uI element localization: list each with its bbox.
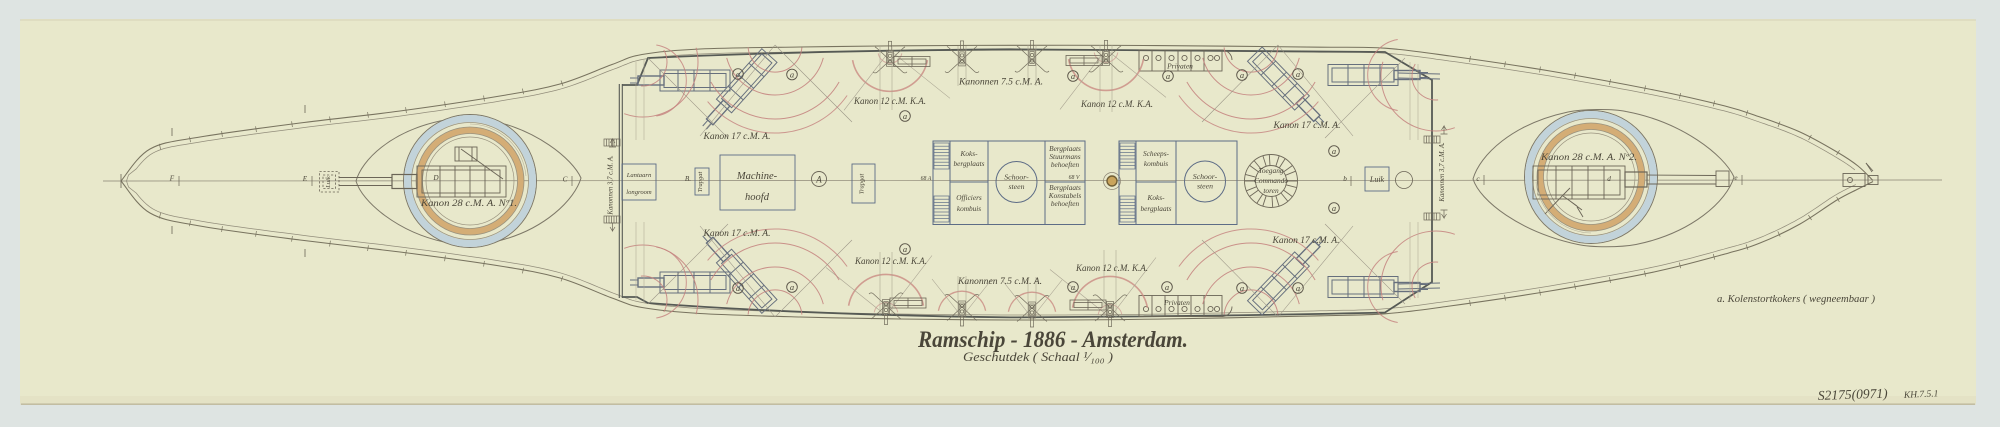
svg-text:steen: steen [1197,182,1213,191]
svg-text:Schoor-: Schoor- [1004,173,1029,182]
svg-text:kombuis: kombuis [957,204,981,213]
svg-text:Privaten: Privaten [1163,298,1190,307]
svg-text:hoofd: hoofd [745,192,770,203]
svg-text:Trapgat: Trapgat [697,172,704,193]
svg-text:Kanonnen 3,7 c.M. A.: Kanonnen 3,7 c.M. A. [608,155,615,216]
svg-text:bergplaats: bergplaats [954,159,985,168]
svg-text:bergplaats: bergplaats [1141,204,1172,213]
svg-text:S2175(0971): S2175(0971) [1818,386,1889,403]
svg-text:Lantaarn: Lantaarn [626,172,652,179]
svg-text:Kanon 12 c.M. K.A.: Kanon 12 c.M. K.A. [1075,264,1148,274]
svg-text:Machine-: Machine- [736,171,778,182]
svg-text:steen: steen [1008,182,1024,191]
svg-text:Kanonnen 7.5 c.M. A.: Kanonnen 7.5 c.M. A. [957,277,1042,287]
svg-text:C: C [563,176,568,184]
svg-text:KH.7.5.1: KH.7.5.1 [1903,389,1939,401]
svg-text:d: d [1607,175,1611,183]
svg-text:b: b [1343,175,1347,183]
svg-text:F: F [169,175,175,183]
svg-text:Commando: Commando [1254,176,1288,185]
svg-text:kombuis: kombuis [1144,159,1168,168]
svg-text:Kanon 17 c.M. A.: Kanon 17 c.M. A. [1272,121,1340,131]
svg-text:Koks-: Koks- [959,149,978,158]
svg-text:behoeften: behoeften [1051,160,1080,169]
svg-text:D: D [432,174,439,182]
svg-text:68 A: 68 A [921,176,932,182]
svg-text:Privaten: Privaten [1166,62,1193,71]
svg-text:behoeften: behoeften [1051,199,1080,208]
svg-text:Geschutdek ( Schaal ¹⁄₁₀₀ ): Geschutdek ( Schaal ¹⁄₁₀₀ ) [963,349,1113,364]
svg-text:Toegang: Toegang [1258,166,1283,175]
svg-text:Kanon 28 c.M. A. Nº1.: Kanon 28 c.M. A. Nº1. [420,198,517,208]
svg-text:Kanon 12 c.M. K.A.: Kanon 12 c.M. K.A. [854,257,927,267]
svg-text:Officiers: Officiers [956,193,982,202]
svg-text:Luik: Luik [325,176,332,189]
svg-text:Kanonnen 3,7 c.M. A.: Kanonnen 3,7 c.M. A. [1439,142,1446,203]
svg-text:Koks-: Koks- [1146,193,1165,202]
svg-text:A: A [815,175,822,185]
svg-text:Kanon 12 c.M. K.A.: Kanon 12 c.M. K.A. [853,97,926,107]
svg-text:Kanon 17 c.M. A.: Kanon 17 c.M. A. [702,132,770,142]
svg-text:longroom: longroom [626,189,652,196]
svg-text:Kanonnen 7.5 c.M. A.: Kanonnen 7.5 c.M. A. [958,78,1043,88]
svg-text:Schoor-: Schoor- [1193,172,1218,181]
svg-text:toren: toren [1263,186,1279,195]
svg-text:Kanon 12 c.M. K.A.: Kanon 12 c.M. K.A. [1080,100,1153,110]
svg-text:Kanon 17 c.M. A.: Kanon 17 c.M. A. [702,229,770,239]
svg-text:E: E [302,175,308,183]
svg-text:68 V: 68 V [1069,175,1081,181]
svg-text:Kanon 17 c.M. A.: Kanon 17 c.M. A. [1271,236,1339,246]
svg-text:B.: B. [685,175,691,183]
svg-text:Luik: Luik [1369,175,1385,184]
svg-text:a. Kolenstortkokers ( wegneemb: a. Kolenstortkokers ( wegneembaar ) [1717,294,1876,305]
svg-text:Kanon 28 c.M. A. Nº2.: Kanon 28 c.M. A. Nº2. [1540,152,1637,162]
svg-text:Trapgat: Trapgat [859,174,866,195]
svg-text:Scheeps-: Scheeps- [1143,149,1170,158]
